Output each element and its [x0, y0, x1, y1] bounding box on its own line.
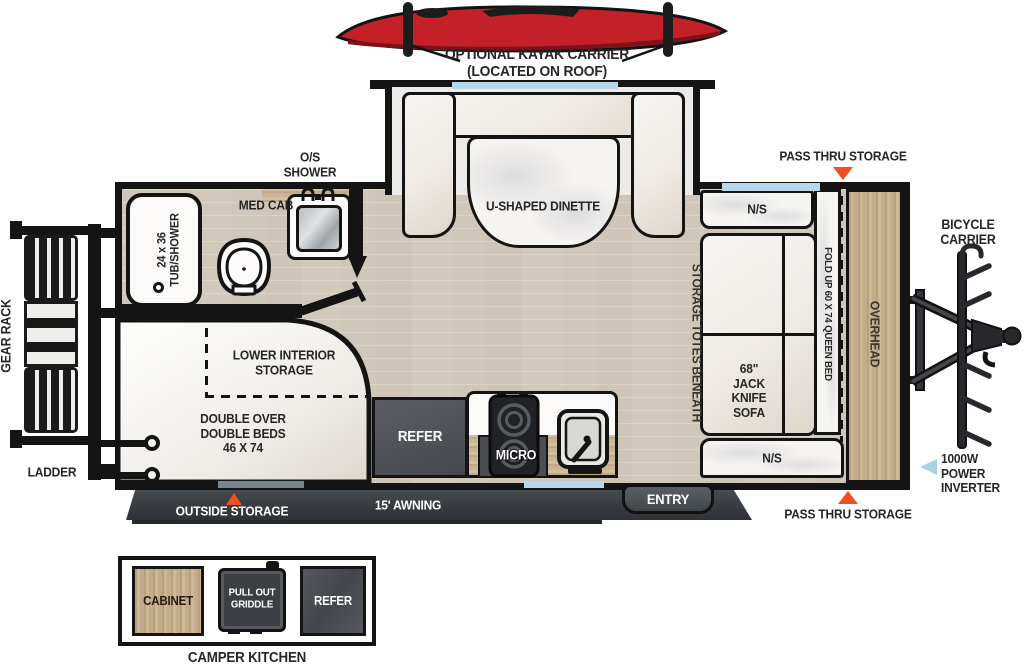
- pull-out-griddle: [218, 568, 286, 632]
- bathroom-door-icon: [285, 248, 377, 323]
- carrier-bar-left-icon: [403, 2, 413, 57]
- slideout-flange-right: [698, 80, 715, 89]
- bottom-window-blue: [524, 481, 604, 488]
- kayak-hatch-icon: [416, 8, 448, 18]
- gear-rack-knob: [10, 430, 22, 448]
- dinette-bench-left: [402, 92, 456, 238]
- storage-dashed-line-h: [205, 395, 369, 398]
- storage-dashed-line-v: [205, 328, 208, 398]
- gear-rack-label: GEAR RACK: [0, 299, 14, 373]
- kitchen-sink-icon: [556, 408, 612, 476]
- entry-door: [622, 484, 714, 514]
- pass-thru-bottom-arrow-icon: [838, 491, 858, 504]
- toilet-icon: [209, 236, 279, 306]
- ladder-ring: [144, 467, 160, 483]
- gear-rack-middle: [24, 301, 78, 367]
- ladder-label: LADDER: [28, 466, 77, 481]
- gear-rack-stub: [99, 228, 117, 238]
- griddle-foot: [228, 629, 240, 634]
- ladder-rung: [97, 472, 148, 479]
- vanity-sink-basin: [296, 205, 342, 252]
- bottom-window-gray: [218, 481, 304, 488]
- floorplan-diagram: OPTIONAL KAYAK CARRIER (LOCATED ON ROOF)…: [0, 0, 1024, 670]
- carrier-bar-right-icon: [663, 2, 673, 57]
- gear-rack-rail-bottom: [14, 436, 92, 445]
- camper-cabinet: [132, 566, 204, 636]
- ladder-rung: [97, 440, 148, 447]
- bathroom-wall-bottom: [122, 304, 302, 318]
- dinette-bench-right: [631, 92, 685, 238]
- gear-rack-knob: [10, 221, 22, 239]
- overhead-cabinet: [846, 189, 903, 483]
- refrigerator: [372, 397, 468, 478]
- dinette-table: [467, 136, 620, 248]
- front-window: [722, 183, 820, 191]
- gear-rack-basket: [24, 367, 78, 433]
- pass-thru-top-arrow-icon: [833, 167, 853, 180]
- drain-icon: [153, 282, 164, 293]
- bicycle-carrier-hitch-icon: [900, 240, 1024, 470]
- camper-refer: [300, 566, 366, 636]
- sofa-back-seam: [782, 236, 785, 433]
- fold-up-queen-bed: [814, 189, 841, 435]
- outside-shower-label: O/S SHOWER: [284, 150, 337, 179]
- slideout-flange-left: [370, 80, 387, 89]
- pass-thru-top-label: PASS THRU STORAGE: [779, 150, 906, 165]
- faucet-icon: [298, 186, 338, 202]
- gear-rack-rail-top: [14, 226, 92, 235]
- slideout-window: [452, 82, 618, 89]
- cooktop-icon: [488, 392, 540, 478]
- overhead-dashed-line: [840, 196, 843, 442]
- nightstand-bottom: [700, 438, 844, 478]
- camper-kitchen-title: CAMPER KITCHEN: [188, 650, 306, 666]
- outside-storage-arrow-icon: [226, 493, 242, 505]
- power-inverter-arrow-icon: [920, 459, 937, 475]
- pass-thru-bottom-label: PASS THRU STORAGE: [784, 508, 911, 523]
- tub-shower: [126, 193, 202, 307]
- kayak-illustration: [330, 0, 730, 90]
- ladder-ring: [144, 435, 160, 451]
- sofa-cushion-seam: [703, 333, 814, 336]
- nightstand-top: [700, 190, 814, 229]
- gear-rack-basket: [24, 235, 78, 301]
- griddle-foot: [250, 629, 262, 634]
